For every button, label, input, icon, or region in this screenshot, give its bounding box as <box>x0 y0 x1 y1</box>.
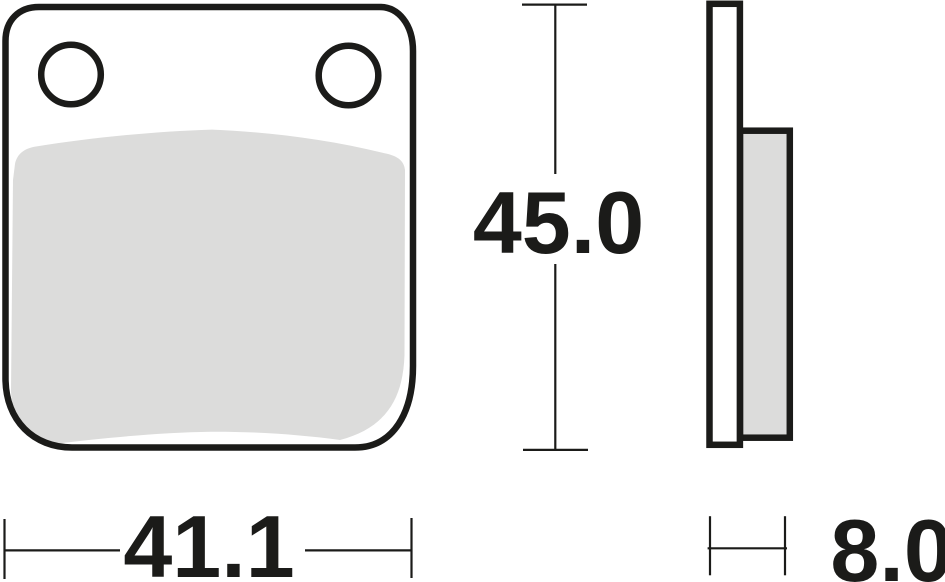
svg-text:8.0: 8.0 <box>830 501 945 582</box>
svg-text:45.0: 45.0 <box>473 173 644 272</box>
svg-text:41.1: 41.1 <box>123 497 294 582</box>
